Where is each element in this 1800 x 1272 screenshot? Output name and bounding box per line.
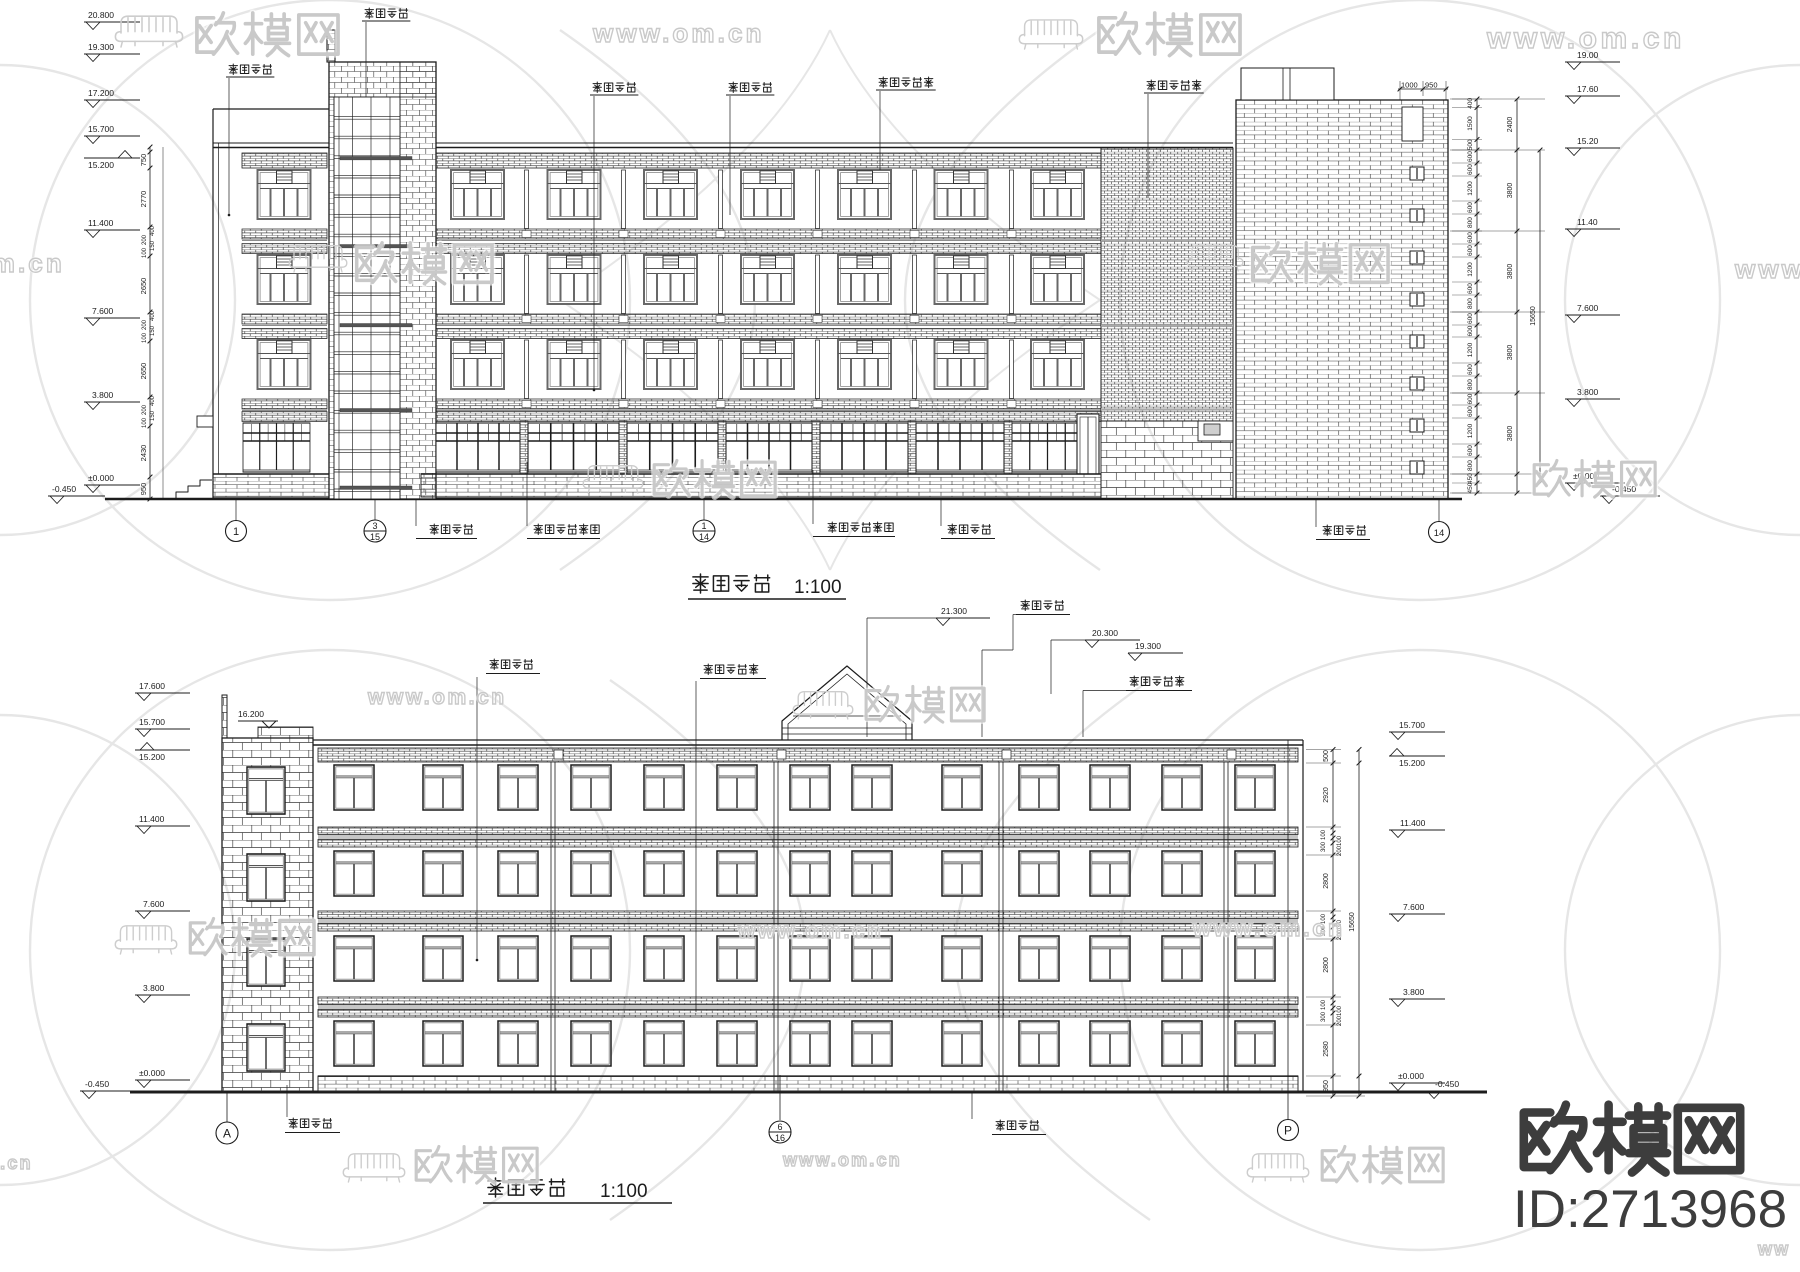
svg-text:16: 16 [775, 1133, 785, 1143]
svg-text:100: 100 [142, 247, 148, 258]
svg-text:w.om.cn: w.om.cn [0, 248, 65, 278]
svg-text:14: 14 [1434, 528, 1445, 539]
svg-text:600: 600 [1467, 445, 1474, 456]
svg-text:-0.450: -0.450 [1435, 1079, 1459, 1089]
svg-text:600: 600 [1467, 283, 1474, 294]
svg-text:600: 600 [1467, 245, 1474, 256]
svg-text:200: 200 [1337, 1015, 1343, 1026]
svg-text:1200: 1200 [1467, 181, 1474, 196]
svg-text:200: 200 [142, 319, 148, 330]
svg-text:3800: 3800 [1507, 426, 1514, 442]
svg-text:3.800: 3.800 [1403, 987, 1425, 997]
svg-text:15.700: 15.700 [139, 717, 165, 727]
svg-text:3800: 3800 [1507, 345, 1514, 361]
svg-text:1200: 1200 [1467, 342, 1474, 357]
svg-text:950: 950 [1425, 81, 1438, 90]
svg-text:100: 100 [1321, 999, 1327, 1010]
svg-text:P: P [1284, 1124, 1292, 1138]
svg-text:2770: 2770 [139, 191, 148, 208]
svg-text:15.700: 15.700 [88, 124, 114, 134]
svg-text:1:100: 1:100 [600, 1181, 648, 1202]
svg-text:±0.000: ±0.000 [139, 1068, 165, 1078]
svg-text:1200: 1200 [1467, 262, 1474, 277]
svg-text:600: 600 [1467, 232, 1474, 243]
svg-text:400: 400 [150, 310, 156, 321]
svg-text:15.200: 15.200 [139, 752, 165, 762]
svg-text:1: 1 [701, 521, 706, 531]
svg-text:2400: 2400 [1507, 117, 1514, 133]
svg-text:www.om.cn: www.om.cn [592, 18, 765, 48]
svg-text:600: 600 [1467, 364, 1474, 375]
svg-text:www.om.cn: www.om.cn [782, 1150, 902, 1170]
svg-text:7.600: 7.600 [1577, 303, 1599, 313]
svg-text:A: A [223, 1127, 231, 1141]
svg-text:300: 300 [1321, 1011, 1327, 1022]
svg-text:3.800: 3.800 [1577, 387, 1599, 397]
svg-text:400: 400 [150, 395, 156, 406]
svg-text:2650: 2650 [139, 278, 148, 295]
svg-text:15: 15 [370, 532, 380, 542]
svg-text:11.400: 11.400 [88, 218, 114, 228]
svg-text:16.200: 16.200 [238, 709, 264, 719]
svg-text:www.: www. [1734, 254, 1800, 284]
svg-text:2430: 2430 [139, 445, 148, 462]
svg-text:20.300: 20.300 [1092, 628, 1118, 638]
svg-text:±0.000: ±0.000 [88, 473, 114, 483]
svg-text:200: 200 [142, 234, 148, 245]
svg-text:19.300: 19.300 [88, 42, 114, 52]
svg-text:400: 400 [150, 225, 156, 236]
svg-text:800: 800 [1467, 379, 1474, 390]
svg-text:15.200: 15.200 [88, 160, 114, 170]
svg-text:6: 6 [777, 1122, 782, 1132]
svg-text:150: 150 [150, 325, 156, 336]
svg-text:950: 950 [139, 483, 148, 496]
svg-text:200: 200 [1337, 845, 1343, 856]
svg-text:11.400: 11.400 [139, 814, 165, 824]
svg-text:600: 600 [1467, 313, 1474, 324]
svg-text:20.800: 20.800 [88, 10, 114, 20]
svg-text:www.om.cn: www.om.cn [737, 918, 883, 943]
svg-text:600: 600 [1467, 406, 1474, 417]
svg-text:17.600: 17.600 [139, 681, 165, 691]
svg-text:21.300: 21.300 [941, 606, 967, 616]
svg-text:17.60: 17.60 [1577, 84, 1599, 94]
svg-text:100: 100 [142, 332, 148, 343]
svg-text:450: 450 [1467, 473, 1474, 484]
svg-text:600: 600 [1467, 393, 1474, 404]
svg-text:600: 600 [1467, 325, 1474, 336]
svg-text:15.200: 15.200 [1399, 758, 1425, 768]
svg-text:www.om.cn: www.om.cn [1486, 22, 1685, 55]
svg-text:3: 3 [372, 521, 377, 531]
svg-text:500: 500 [1323, 750, 1330, 762]
svg-text:7.600: 7.600 [1403, 902, 1425, 912]
svg-text:www.om.cn: www.om.cn [367, 686, 507, 709]
svg-text:14: 14 [699, 532, 709, 542]
svg-text:3800: 3800 [1507, 264, 1514, 280]
svg-text:2800: 2800 [1323, 873, 1330, 889]
svg-text:15650: 15650 [1530, 306, 1537, 326]
svg-text:2580: 2580 [1323, 1041, 1330, 1057]
svg-text:450: 450 [1467, 482, 1474, 493]
svg-text:11.400: 11.400 [1400, 818, 1426, 828]
svg-text:2920: 2920 [1323, 787, 1330, 803]
svg-text:3.800: 3.800 [143, 983, 165, 993]
svg-text:11.40: 11.40 [1577, 217, 1598, 227]
svg-text:600: 600 [1467, 151, 1474, 162]
svg-text:15.700: 15.700 [1399, 720, 1425, 730]
svg-text:15650: 15650 [1349, 912, 1356, 932]
svg-text:2650: 2650 [139, 363, 148, 380]
svg-text:950: 950 [1323, 1080, 1330, 1092]
svg-text:600: 600 [1467, 164, 1474, 175]
svg-text:±0.000: ±0.000 [1398, 1071, 1424, 1081]
svg-text:750: 750 [139, 154, 148, 167]
svg-text:800: 800 [1467, 217, 1474, 228]
svg-text:2800: 2800 [1323, 957, 1330, 973]
svg-text:1: 1 [233, 526, 239, 538]
svg-text:ID:2713968: ID:2713968 [1513, 1180, 1787, 1239]
svg-text:1000: 1000 [1401, 81, 1418, 90]
svg-text:100: 100 [142, 417, 148, 428]
svg-text:150: 150 [150, 240, 156, 251]
svg-text:150: 150 [150, 410, 156, 421]
svg-text:100: 100 [1321, 829, 1327, 840]
svg-text:1500: 1500 [1467, 116, 1474, 131]
svg-text:800: 800 [1467, 460, 1474, 471]
svg-text:3.800: 3.800 [92, 390, 114, 400]
svg-text:100: 100 [1337, 1005, 1343, 1016]
svg-text:-0.450: -0.450 [52, 484, 76, 494]
svg-text:3800: 3800 [1507, 183, 1514, 199]
svg-text:7.600: 7.600 [143, 899, 165, 909]
svg-text:600: 600 [1467, 202, 1474, 213]
svg-text:-0.450: -0.450 [85, 1079, 109, 1089]
svg-text:100: 100 [1337, 835, 1343, 846]
svg-text:800: 800 [1467, 298, 1474, 309]
svg-text:ww: ww [1757, 1239, 1790, 1259]
svg-text:m.cn: m.cn [0, 1153, 33, 1173]
svg-text:300: 300 [1321, 841, 1327, 852]
svg-text:200: 200 [142, 404, 148, 415]
svg-text:www.om.cn: www.om.cn [1192, 915, 1345, 941]
svg-text:500: 500 [1467, 139, 1474, 150]
svg-text:1200: 1200 [1467, 423, 1474, 438]
svg-text:19.300: 19.300 [1135, 641, 1161, 651]
svg-text:1:100: 1:100 [794, 577, 842, 598]
svg-text:17.200: 17.200 [88, 88, 114, 98]
svg-text:15.20: 15.20 [1577, 136, 1599, 146]
svg-text:7.600: 7.600 [92, 306, 114, 316]
